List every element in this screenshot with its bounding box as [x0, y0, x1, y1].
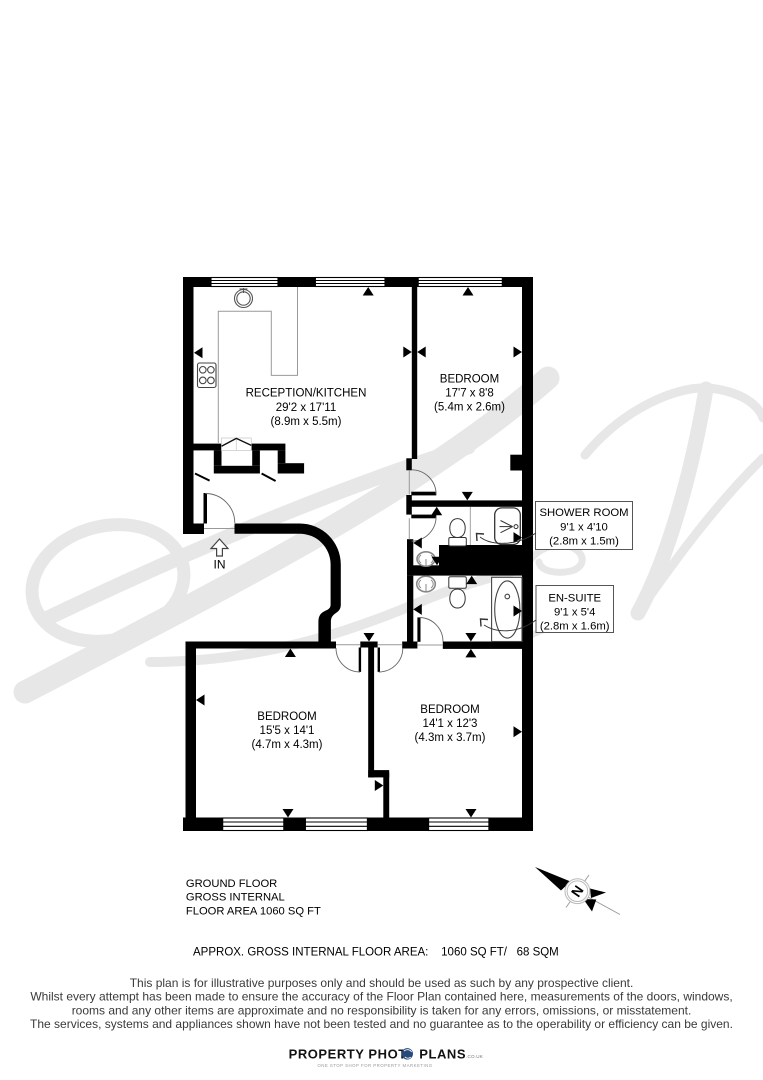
svg-text:14'1 x 12'3: 14'1 x 12'3: [423, 718, 478, 730]
svg-text:(5.4m x 2.6m): (5.4m x 2.6m): [434, 402, 505, 414]
svg-text:The services, systems and appl: The services, systems and appliances sho…: [30, 1017, 733, 1031]
svg-text:rooms and any other items are: rooms and any other items are approximat…: [72, 1003, 692, 1017]
svg-text:BEDROOM: BEDROOM: [257, 711, 316, 723]
svg-text:GROSS INTERNAL: GROSS INTERNAL: [186, 892, 285, 904]
svg-text:BEDROOM: BEDROOM: [420, 704, 479, 716]
svg-text:FLOOR AREA 1060 SQ FT: FLOOR AREA 1060 SQ FT: [186, 905, 321, 917]
svg-text:APPROX. GROSS INTERNAL FLOOR A: APPROX. GROSS INTERNAL FLOOR AREA: 1060 …: [193, 947, 559, 959]
svg-text:29'2 x 17'11: 29'2 x 17'11: [276, 402, 336, 414]
svg-text:IN: IN: [214, 558, 226, 572]
svg-text:This plan is for illustrative: This plan is for illustrative purposes o…: [130, 976, 634, 990]
svg-text:Whilst every attempt has been: Whilst every attempt has been made to en…: [30, 990, 732, 1004]
svg-text:EN-SUITE: EN-SUITE: [548, 593, 601, 605]
svg-text:9'1 x 5'4: 9'1 x 5'4: [554, 607, 595, 619]
svg-text:(4.3m x 3.7m): (4.3m x 3.7m): [415, 732, 486, 744]
svg-text:(2.8m x 1.5m): (2.8m x 1.5m): [549, 536, 619, 548]
svg-text:BEDROOM: BEDROOM: [440, 374, 499, 386]
svg-text:SHOWER ROOM: SHOWER ROOM: [539, 507, 628, 519]
svg-text:RECEPTION/KITCHEN: RECEPTION/KITCHEN: [246, 388, 367, 400]
svg-text:17'7 x 8'8: 17'7 x 8'8: [445, 388, 494, 400]
svg-text:9'1 x 4'10: 9'1 x 4'10: [560, 522, 608, 534]
svg-text:GROUND FLOOR: GROUND FLOOR: [186, 878, 277, 890]
svg-text:(4.7m x 4.3m): (4.7m x 4.3m): [252, 739, 323, 751]
svg-text:ONE STOP SHOP FOR PROPERTY MAR: ONE STOP SHOP FOR PROPERTY MARKETING: [317, 1063, 432, 1068]
svg-text:(2.8m x 1.6m): (2.8m x 1.6m): [540, 621, 610, 633]
svg-text:15'5 x 14'1: 15'5 x 14'1: [260, 725, 315, 737]
svg-text:(8.9m x 5.5m): (8.9m x 5.5m): [271, 416, 342, 428]
svg-text:PROPERTY PHOT PLANS: PROPERTY PHOT PLANS: [289, 1047, 466, 1062]
svg-text:.CO.UK: .CO.UK: [466, 1054, 484, 1059]
